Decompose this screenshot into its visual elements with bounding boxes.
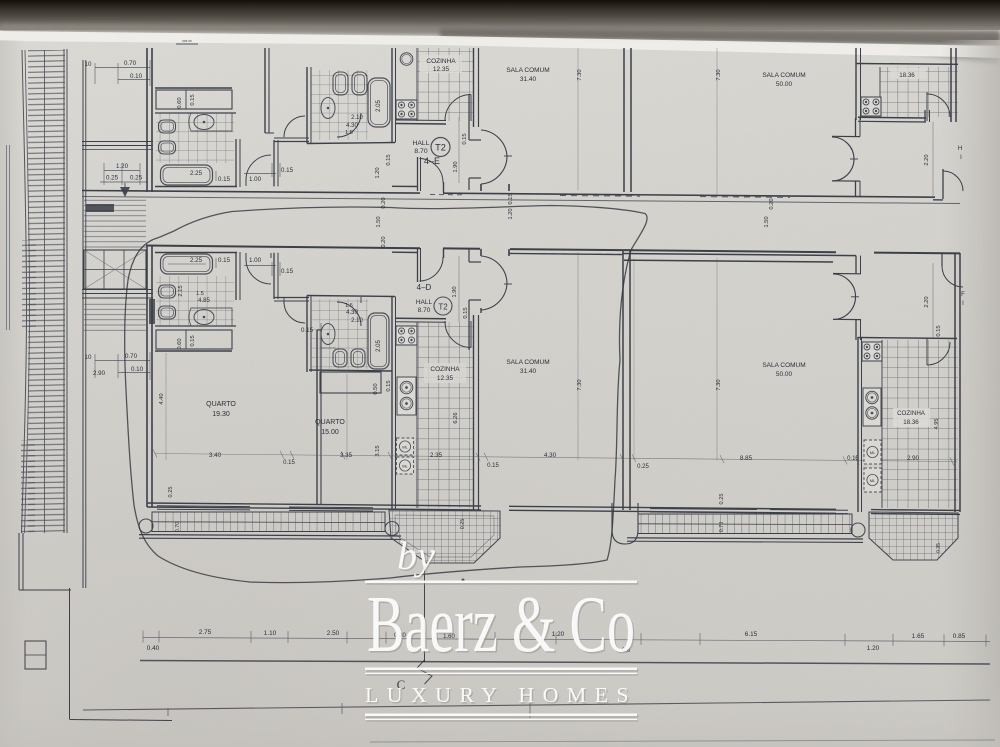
svg-text:0.15: 0.15 bbox=[283, 460, 295, 466]
svg-text:0.15: 0.15 bbox=[218, 176, 231, 183]
svg-text:2.20: 2.20 bbox=[924, 296, 930, 307]
svg-text:2.15: 2.15 bbox=[178, 285, 184, 296]
svg-text:0.15: 0.15 bbox=[386, 380, 392, 391]
svg-text:xxx xx: xxx xx bbox=[182, 39, 192, 43]
svg-text:0.15: 0.15 bbox=[487, 463, 499, 469]
svg-text:1.00: 1.00 bbox=[249, 176, 262, 183]
svg-text:HALL: HALL bbox=[412, 140, 429, 147]
svg-text:6.15: 6.15 bbox=[745, 631, 758, 638]
svg-text:0.70: 0.70 bbox=[719, 522, 725, 533]
svg-text:10: 10 bbox=[85, 61, 92, 68]
svg-text:1.90: 1.90 bbox=[453, 161, 459, 172]
svg-text:50.00: 50.00 bbox=[776, 371, 793, 378]
svg-text:0.60: 0.60 bbox=[177, 97, 183, 108]
svg-text:50.00: 50.00 bbox=[776, 81, 793, 88]
svg-text:ML: ML bbox=[402, 464, 408, 469]
svg-text:0.15: 0.15 bbox=[218, 257, 231, 264]
svg-text:ML: ML bbox=[870, 478, 876, 483]
svg-text:4.95: 4.95 bbox=[934, 419, 940, 430]
svg-text:0.35: 0.35 bbox=[936, 543, 942, 553]
svg-text:1.20: 1.20 bbox=[508, 208, 514, 219]
svg-text:0.25: 0.25 bbox=[460, 519, 466, 530]
svg-text:0.50: 0.50 bbox=[373, 383, 379, 394]
svg-text:7.30: 7.30 bbox=[577, 379, 583, 390]
svg-text:1.50: 1.50 bbox=[764, 216, 770, 227]
svg-text:LUXURY HOMES: LUXURY HOMES bbox=[365, 683, 637, 707]
svg-text:0.10: 0.10 bbox=[131, 366, 144, 373]
svg-text:2.75: 2.75 bbox=[199, 629, 212, 636]
svg-text:T2: T2 bbox=[438, 303, 448, 312]
svg-text:ML: ML bbox=[870, 450, 876, 455]
svg-text:3.40: 3.40 bbox=[209, 452, 222, 459]
svg-text:12.35: 12.35 bbox=[433, 66, 450, 73]
svg-text:1.5: 1.5 bbox=[345, 303, 353, 309]
svg-text:2.10: 2.10 bbox=[351, 115, 363, 121]
svg-text:0.25: 0.25 bbox=[106, 175, 119, 182]
svg-text:1.90: 1.90 bbox=[452, 286, 458, 297]
svg-text:0.25: 0.25 bbox=[637, 464, 649, 470]
svg-text:0.70: 0.70 bbox=[125, 353, 138, 360]
svg-text:19.30: 19.30 bbox=[212, 411, 230, 418]
svg-text:SALA COMUM: SALA COMUM bbox=[762, 362, 805, 369]
svg-text:1.5: 1.5 bbox=[345, 130, 353, 136]
svg-text:2.25: 2.25 bbox=[190, 170, 203, 177]
svg-text:QUARTO: QUARTO bbox=[206, 401, 236, 408]
svg-text:by: by bbox=[397, 533, 435, 578]
svg-text:2.05: 2.05 bbox=[376, 340, 382, 352]
svg-text:31.40: 31.40 bbox=[520, 368, 537, 375]
svg-text:0.25: 0.25 bbox=[719, 494, 725, 505]
svg-text:4.40: 4.40 bbox=[159, 393, 165, 404]
svg-text:Baerz & Co: Baerz & Co bbox=[367, 581, 635, 669]
svg-text:0.15: 0.15 bbox=[190, 94, 196, 105]
svg-text:0.15: 0.15 bbox=[508, 193, 514, 204]
svg-text:3.35: 3.35 bbox=[340, 452, 353, 459]
svg-text:4.30: 4.30 bbox=[544, 452, 557, 459]
svg-text:1.5: 1.5 bbox=[196, 291, 204, 297]
svg-text:4–D: 4–D bbox=[417, 283, 432, 292]
svg-text:0.15: 0.15 bbox=[281, 167, 294, 174]
svg-text:SALA COMUM: SALA COMUM bbox=[506, 67, 549, 74]
svg-text:1.20: 1.20 bbox=[867, 645, 880, 652]
svg-text:T2: T2 bbox=[435, 143, 446, 153]
svg-text:15.00: 15.00 bbox=[321, 429, 339, 436]
svg-text:7.30: 7.30 bbox=[577, 69, 583, 80]
svg-text:COZINHA: COZINHA bbox=[426, 58, 456, 65]
svg-text:4.30: 4.30 bbox=[346, 123, 358, 129]
svg-text:H: H bbox=[958, 146, 962, 152]
svg-text:2.90: 2.90 bbox=[93, 370, 106, 377]
svg-text:0.70: 0.70 bbox=[124, 60, 137, 67]
svg-text:2.35: 2.35 bbox=[430, 452, 443, 459]
svg-text:QUARTO: QUARTO bbox=[315, 419, 345, 426]
svg-text:1.65: 1.65 bbox=[912, 633, 925, 640]
svg-text:HALL: HALL bbox=[416, 299, 433, 306]
svg-text:18.36: 18.36 bbox=[899, 72, 915, 79]
svg-text:0.70: 0.70 bbox=[175, 522, 181, 533]
svg-text:0.15: 0.15 bbox=[936, 325, 942, 336]
svg-text:18.36: 18.36 bbox=[903, 419, 919, 426]
svg-text:3.15: 3.15 bbox=[375, 445, 381, 456]
svg-text:2.50: 2.50 bbox=[327, 630, 340, 637]
svg-text:0.15: 0.15 bbox=[281, 268, 294, 275]
svg-text:12.35: 12.35 bbox=[437, 375, 454, 382]
svg-text:F: F bbox=[961, 292, 965, 298]
svg-text:1.50: 1.50 bbox=[376, 216, 382, 227]
svg-text:0.20: 0.20 bbox=[381, 236, 387, 247]
svg-text:0.20: 0.20 bbox=[769, 198, 775, 209]
svg-text:SALA COMUM: SALA COMUM bbox=[762, 72, 805, 79]
svg-text:1.10: 1.10 bbox=[264, 630, 277, 637]
svg-text:0.10: 0.10 bbox=[130, 73, 143, 80]
svg-text:8.85: 8.85 bbox=[740, 455, 753, 462]
svg-text:0.25: 0.25 bbox=[130, 175, 143, 182]
svg-text:0.60: 0.60 bbox=[177, 338, 183, 349]
svg-text:COZINHA: COZINHA bbox=[897, 410, 926, 417]
svg-text:0.15: 0.15 bbox=[190, 335, 196, 346]
svg-text:0.25: 0.25 bbox=[168, 487, 174, 498]
svg-text:ML: ML bbox=[402, 445, 408, 450]
svg-text:6.26: 6.26 bbox=[453, 412, 459, 423]
svg-text:0.40: 0.40 bbox=[147, 645, 160, 652]
svg-text:COZINHA: COZINHA bbox=[430, 366, 460, 373]
svg-text:8.70: 8.70 bbox=[418, 307, 431, 314]
svg-text:0.15: 0.15 bbox=[463, 307, 469, 318]
svg-text:0.15: 0.15 bbox=[386, 154, 392, 165]
svg-text:7.30: 7.30 bbox=[716, 379, 722, 390]
svg-text:2.25: 2.25 bbox=[190, 257, 203, 264]
svg-text:2.10: 2.10 bbox=[351, 318, 363, 324]
svg-text:2.05: 2.05 bbox=[376, 100, 382, 112]
svg-text:1.00: 1.00 bbox=[249, 257, 262, 264]
svg-text:4–E: 4–E bbox=[424, 156, 440, 166]
svg-text:0.15: 0.15 bbox=[462, 133, 468, 144]
svg-text:SALA COMUM: SALA COMUM bbox=[506, 359, 549, 366]
svg-text:31.40: 31.40 bbox=[520, 76, 537, 83]
svg-text:7.30: 7.30 bbox=[716, 69, 722, 80]
svg-text:2.20: 2.20 bbox=[924, 154, 930, 165]
svg-text:0.85: 0.85 bbox=[953, 633, 966, 640]
svg-text:8.70: 8.70 bbox=[414, 148, 427, 155]
svg-text:1.20: 1.20 bbox=[375, 167, 381, 178]
svg-text:4.85: 4.85 bbox=[198, 298, 210, 304]
svg-text:4.30: 4.30 bbox=[346, 310, 358, 316]
svg-text:10: 10 bbox=[85, 354, 92, 361]
